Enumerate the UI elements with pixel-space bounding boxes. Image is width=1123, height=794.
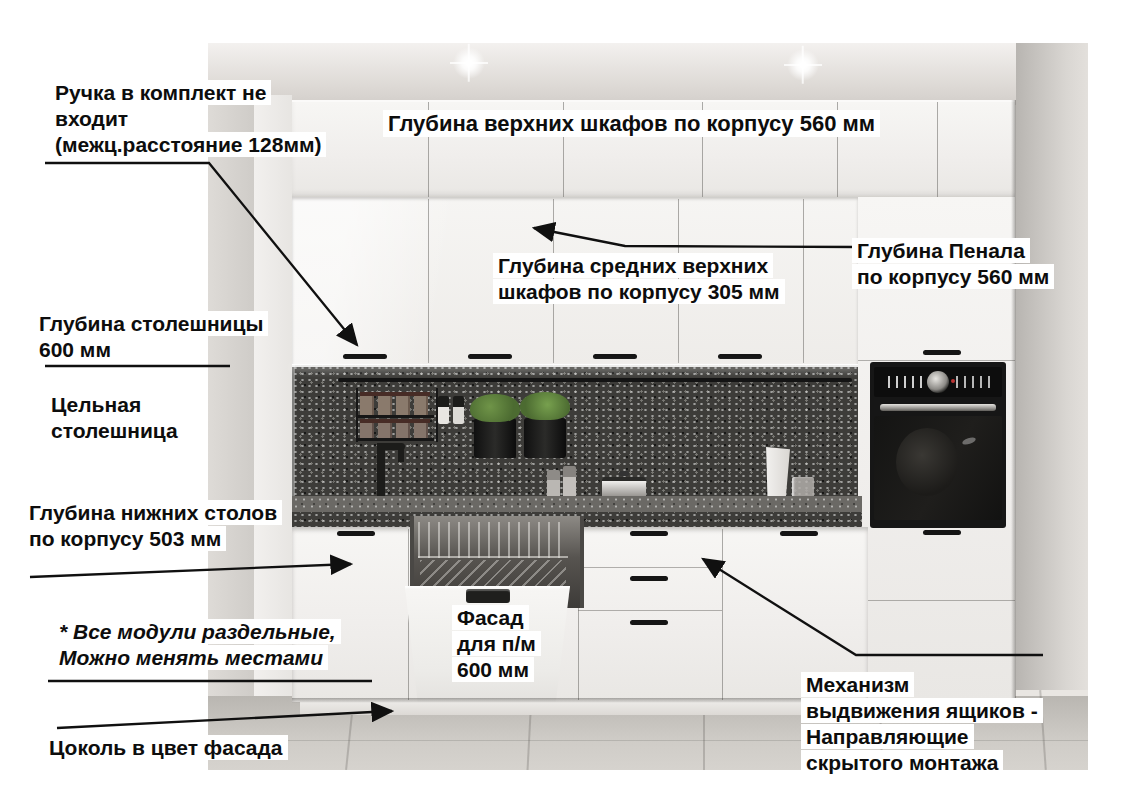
drawer-handle: [630, 531, 668, 536]
label-countertop-depth-text: Глубина столешницы 600 мм: [34, 311, 268, 362]
label-base-depth-text: Глубина нижних столов по корпусу 503 мм: [24, 500, 282, 551]
cabinet-seam: [803, 199, 804, 363]
upper-door-handle: [593, 354, 637, 359]
label-tall-unit-depth: Глубина Пенала по корпусу 560 мм: [852, 238, 1054, 290]
dishwasher-door-handle: [466, 589, 510, 603]
spice-rack: [356, 388, 438, 442]
penal-seam: [858, 600, 1015, 601]
drawer-handle: [630, 576, 668, 581]
label-dishwasher-facade-text: Фасад для п/м 600 мм: [452, 605, 541, 682]
base-door-handle: [780, 531, 818, 536]
spice-shelf-bar: [356, 438, 434, 441]
grinder-on-rail: [438, 396, 449, 424]
spice-jar-row: [360, 392, 430, 416]
label-modules-note-text: * Все модули раздельные, Можно менять ме…: [54, 619, 341, 670]
upper-door-handle: [718, 354, 762, 359]
floor-grout-line: [703, 714, 705, 770]
label-modules-note: * Все модули раздельные, Можно менять ме…: [54, 619, 341, 671]
label-drawer-mechanism: Механизм выдвижения ящиков - Направляющи…: [801, 672, 1043, 776]
right-wall: [1016, 43, 1088, 690]
grinder-on-rail: [453, 396, 464, 424]
label-base-depth: Глубина нижних столов по корпусу 503 мм: [24, 500, 282, 552]
label-handle-note: Ручка в комплект не входит (межц.расстоя…: [50, 80, 326, 158]
ceiling: [208, 43, 1088, 105]
label-solid-countertop: Цельная столешница: [46, 392, 183, 444]
label-countertop-depth: Глубина столешницы 600 мм: [34, 311, 268, 363]
label-handle-note-text: Ручка в комплект не входит (межц.расстоя…: [50, 80, 326, 157]
label-plinth-note: Цоколь в цвет фасада: [44, 735, 288, 761]
herb-planter: [524, 418, 566, 458]
upper-door-handle: [468, 354, 512, 359]
drawer-handle: [630, 620, 668, 625]
herb-plant: [520, 392, 570, 420]
oven: [870, 362, 1006, 528]
penal-drawer-handle: [923, 350, 961, 355]
countertop-surface: [292, 496, 862, 512]
sink-cabinet-handle: [337, 531, 375, 536]
drawer-seam: [578, 610, 722, 611]
label-solid-countertop-text: Цельная столешница: [46, 392, 183, 443]
label-tall-unit-depth-text: Глубина Пенала по корпусу 560 мм: [852, 238, 1054, 289]
upper-door-handle: [343, 354, 387, 359]
herb-plant: [470, 394, 520, 422]
oven-panel-red-dot: [951, 379, 955, 383]
ceiling-spotlight-left: [452, 46, 486, 80]
penal-right-shadow: [1011, 100, 1016, 702]
oven-handle: [880, 404, 996, 411]
pot-lid-knob: [619, 471, 629, 476]
left-wall: [208, 95, 254, 702]
label-mid-upper-depth-text: Глубина средних верхних шкафов по корпус…: [493, 253, 785, 304]
kitchen-annotated-diagram: Ручка в комплект не входит (межц.расстоя…: [0, 0, 1123, 794]
cabinet-seam: [428, 199, 429, 363]
label-drawer-mechanism-text: Механизм выдвижения ящиков - Направляющи…: [801, 672, 1043, 775]
oven-panel-buttons-right: [956, 376, 990, 388]
label-upper-depth: Глубина верхних шкафов по корпусу 560 мм: [383, 110, 880, 137]
under-cabinet-led-strip: [292, 364, 858, 367]
ceiling-spotlight-right: [786, 48, 820, 82]
faucet-spout-tip: [398, 449, 404, 462]
left-side-panel: [254, 95, 292, 702]
dishwasher-rack-upper: [418, 522, 568, 558]
label-mid-upper-depth: Глубина средних верхних шкафов по корпус…: [493, 253, 785, 305]
backsplash-left-light-edge: [292, 365, 295, 500]
spice-shelf-bar: [356, 415, 434, 418]
label-plinth-note-text: Цоколь в цвет фасада: [44, 735, 288, 760]
base-seam: [722, 529, 723, 700]
oven-door-reflection: [896, 428, 958, 496]
oven-panel-buttons-left: [888, 376, 922, 388]
label-dishwasher-facade: Фасад для п/м 600 мм: [452, 605, 541, 683]
cabinet-seam: [937, 102, 938, 197]
penal-base-handle: [923, 530, 961, 535]
herb-planter: [474, 418, 516, 458]
label-upper-depth-text: Глубина верхних шкафов по корпусу 560 мм: [383, 110, 880, 137]
wall-rail: [338, 378, 852, 382]
oven-dial: [927, 371, 949, 393]
faucet-post: [377, 443, 385, 501]
drawer-seam: [578, 567, 722, 568]
penal-seam: [858, 360, 1015, 361]
